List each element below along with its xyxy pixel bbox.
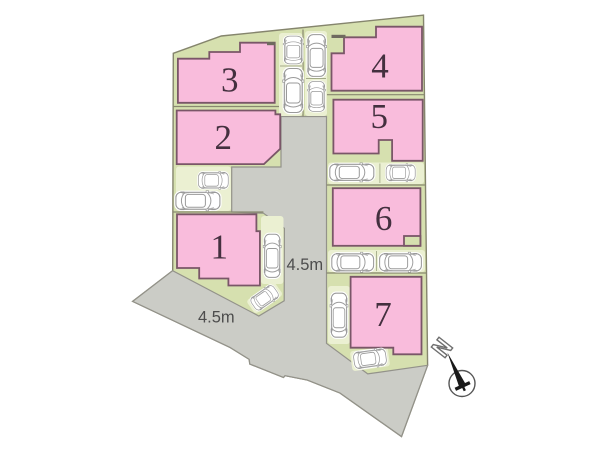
svg-text:2: 2 [214,118,232,157]
svg-text:4.5m: 4.5m [198,309,235,327]
svg-text:6: 6 [375,199,393,238]
svg-text:3: 3 [221,61,239,100]
svg-text:4: 4 [371,46,389,85]
svg-text:4.5m: 4.5m [287,256,324,274]
svg-text:1: 1 [211,227,229,266]
svg-text:7: 7 [374,295,392,334]
svg-text:5: 5 [370,97,388,136]
